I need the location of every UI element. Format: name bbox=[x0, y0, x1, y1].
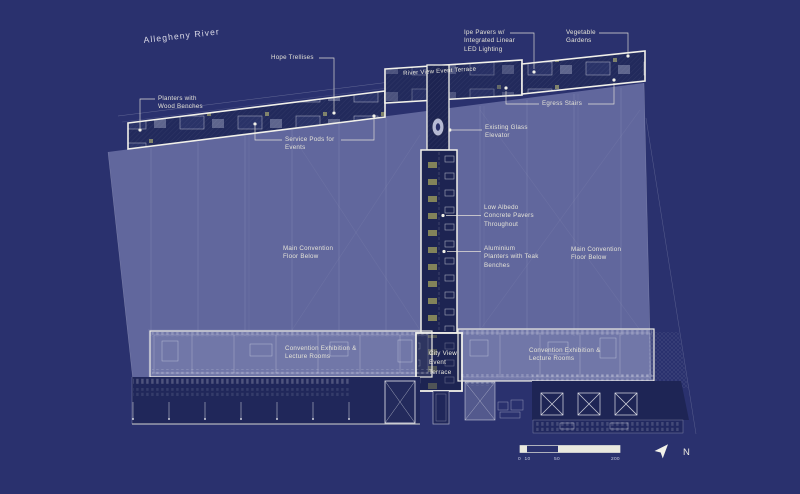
label-main-convention-floor-right: Main Convention Floor Below bbox=[571, 246, 621, 263]
skylight-box-by-spine bbox=[465, 382, 495, 420]
scale-bar: 0 10 50 200 bbox=[518, 446, 620, 463]
scale-tick-50: 50 bbox=[554, 456, 560, 462]
label-city-view-event-terrace: City View Event Terrace bbox=[429, 349, 457, 377]
scale-tick-0: 0 bbox=[518, 456, 521, 462]
callout-vegetable-gardens: Vegetable Gardens bbox=[566, 29, 596, 46]
rooftop-equipment bbox=[498, 400, 523, 418]
callout-aluminium-planters: Aluminium Planters with Teak Benches bbox=[484, 245, 539, 270]
label-convention-exhibition-left: Convention Exhibition & Lecture Rooms bbox=[285, 345, 356, 362]
convention-center-roof-plan: 0 10 50 200 N bbox=[0, 0, 800, 494]
loading-dock-left bbox=[132, 377, 420, 424]
north-label: N bbox=[683, 447, 691, 458]
site-plan-canvas: 0 10 50 200 N Allegheny River Planters w… bbox=[0, 0, 800, 494]
callout-egress-stairs: Egress Stairs bbox=[542, 100, 582, 108]
callout-planters-wood-benches: Planters with Wood Benches bbox=[158, 95, 203, 112]
callout-ipe-pavers: Ipe Pavers w/ Integrated Linear LED Ligh… bbox=[464, 29, 515, 54]
loading-dock-right bbox=[533, 420, 683, 433]
skylight-crossed-box bbox=[385, 381, 415, 423]
scale-tick-200: 200 bbox=[611, 456, 620, 462]
label-main-convention-floor-left: Main Convention Floor Below bbox=[283, 245, 333, 262]
hatch-wedge bbox=[649, 332, 688, 388]
glass-elevator-icon bbox=[432, 118, 444, 136]
label-convention-exhibition-right: Convention Exhibition & Lecture Rooms bbox=[529, 347, 600, 364]
spine-south-stub bbox=[433, 391, 449, 424]
callout-hope-trellises: Hope Trellises bbox=[271, 54, 314, 62]
service-platform bbox=[532, 375, 689, 420]
north-arrow-icon: N bbox=[655, 441, 691, 459]
callout-low-albedo-pavers: Low Albedo Concrete Pavers Throughout bbox=[484, 204, 534, 229]
scale-tick-10: 10 bbox=[525, 456, 531, 462]
callout-existing-glass-elevator: Existing Glass Elevator bbox=[485, 124, 528, 141]
callout-service-pods: Service Pods for Events bbox=[285, 136, 334, 153]
